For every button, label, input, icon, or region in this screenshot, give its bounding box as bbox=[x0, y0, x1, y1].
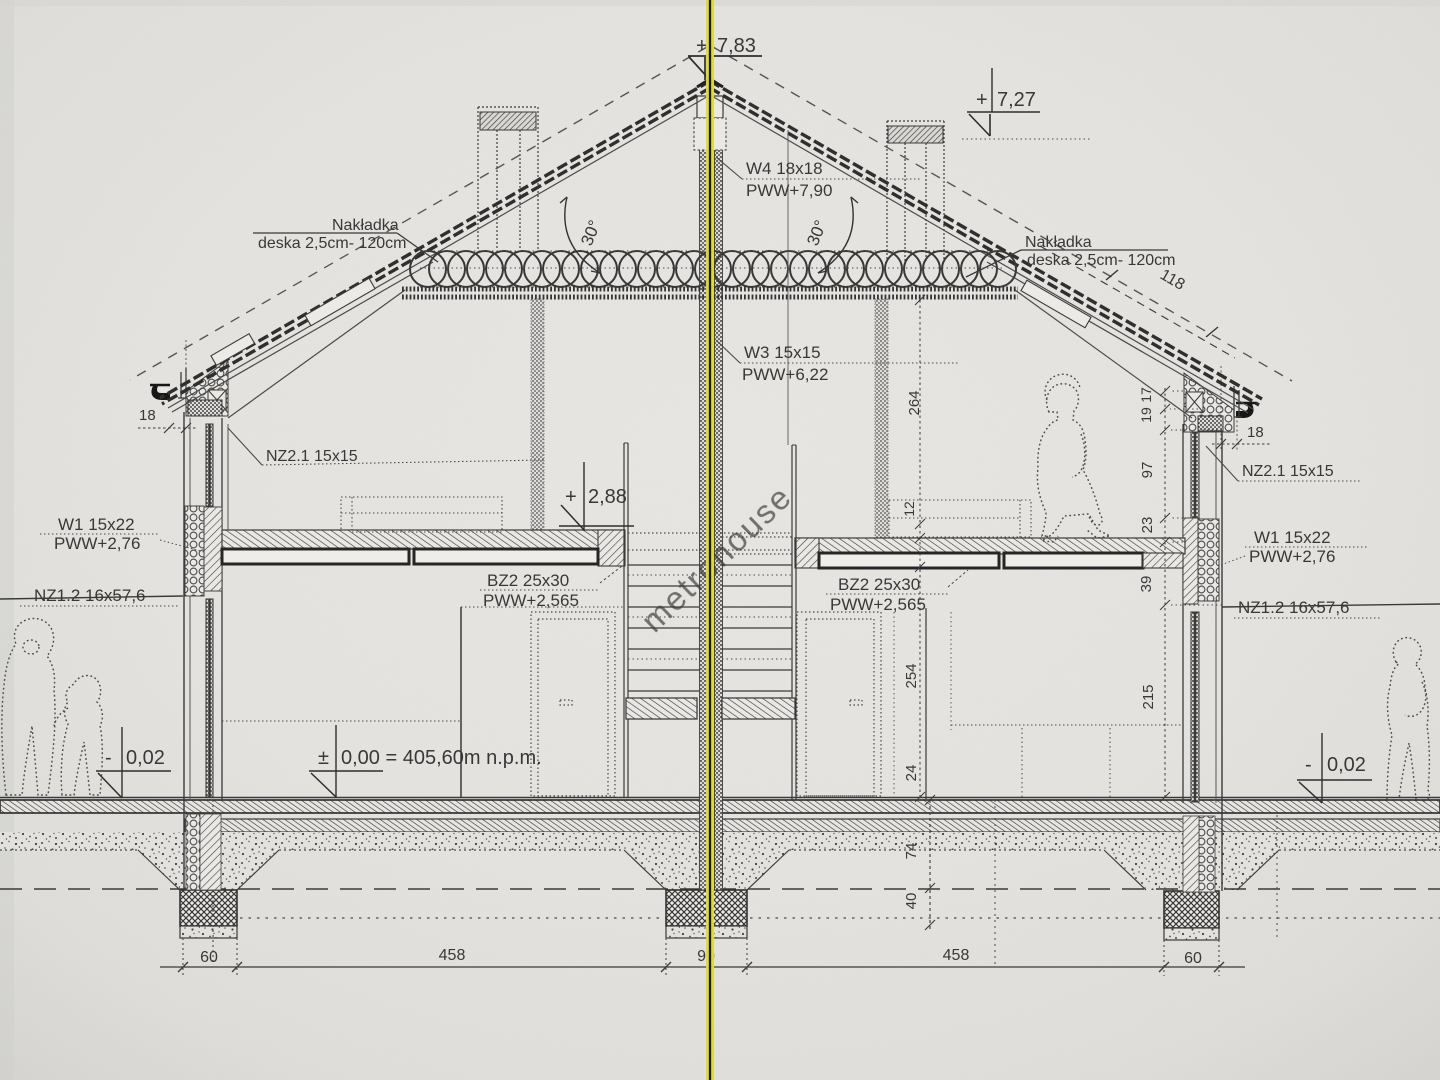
svg-text:458: 458 bbox=[439, 947, 466, 964]
svg-text:W1 15x22: W1 15x22 bbox=[1254, 528, 1331, 547]
svg-text:254: 254 bbox=[903, 663, 920, 688]
svg-text:12: 12 bbox=[901, 501, 917, 517]
svg-text:NZ2.1 15x15: NZ2.1 15x15 bbox=[266, 448, 358, 465]
svg-text:PWW+6,22: PWW+6,22 bbox=[742, 365, 828, 384]
svg-text:19: 19 bbox=[1138, 407, 1154, 423]
svg-text:deska 2,5cm- 120cm: deska 2,5cm- 120cm bbox=[1027, 252, 1176, 269]
svg-text:PWW+2,76: PWW+2,76 bbox=[54, 534, 140, 553]
svg-text:W1 15x22: W1 15x22 bbox=[58, 515, 135, 534]
svg-text:PWW+7,90: PWW+7,90 bbox=[746, 181, 832, 200]
svg-text:18: 18 bbox=[139, 407, 156, 424]
svg-text:40: 40 bbox=[903, 893, 920, 910]
svg-text:23: 23 bbox=[1139, 517, 1156, 534]
svg-text:PWW+2,76: PWW+2,76 bbox=[1249, 547, 1335, 566]
svg-text:60: 60 bbox=[1184, 950, 1202, 967]
svg-text:97: 97 bbox=[1139, 462, 1156, 479]
svg-text:39: 39 bbox=[1138, 576, 1155, 593]
svg-text:+2,88: +2,88 bbox=[565, 486, 627, 508]
svg-text:W4 18x18: W4 18x18 bbox=[746, 159, 823, 178]
svg-text:Nakładka: Nakładka bbox=[332, 217, 399, 234]
svg-text:PWW+2,565: PWW+2,565 bbox=[483, 591, 579, 610]
svg-text:264: 264 bbox=[906, 390, 923, 415]
svg-text:±0,00 = 405,60m n.p.m.: ±0,00 = 405,60m n.p.m. bbox=[318, 747, 542, 769]
svg-text:17: 17 bbox=[1138, 387, 1154, 403]
svg-text:458: 458 bbox=[943, 947, 970, 964]
svg-text:+7,27: +7,27 bbox=[976, 89, 1036, 111]
svg-text:NZ1.2 16x57,6: NZ1.2 16x57,6 bbox=[1238, 598, 1350, 617]
svg-text:W3 15x15: W3 15x15 bbox=[744, 343, 821, 362]
svg-text:+7,83: +7,83 bbox=[696, 35, 756, 57]
svg-text:18: 18 bbox=[1247, 424, 1264, 441]
svg-text:24: 24 bbox=[903, 765, 920, 782]
svg-text:BZ2 25x30: BZ2 25x30 bbox=[838, 575, 920, 594]
svg-text:215: 215 bbox=[1140, 684, 1157, 709]
svg-text:Nakładka: Nakładka bbox=[1025, 234, 1092, 251]
svg-text:BZ2 25x30: BZ2 25x30 bbox=[487, 571, 569, 590]
svg-text:PWW+2,565: PWW+2,565 bbox=[830, 595, 926, 614]
svg-text:NZ2.1 15x15: NZ2.1 15x15 bbox=[1242, 463, 1334, 480]
svg-text:NZ1.2 16x57,6: NZ1.2 16x57,6 bbox=[34, 586, 146, 605]
svg-text:deska 2,5cm- 120cm: deska 2,5cm- 120cm bbox=[258, 235, 407, 252]
svg-text:74: 74 bbox=[903, 843, 920, 860]
svg-text:60: 60 bbox=[200, 949, 218, 966]
